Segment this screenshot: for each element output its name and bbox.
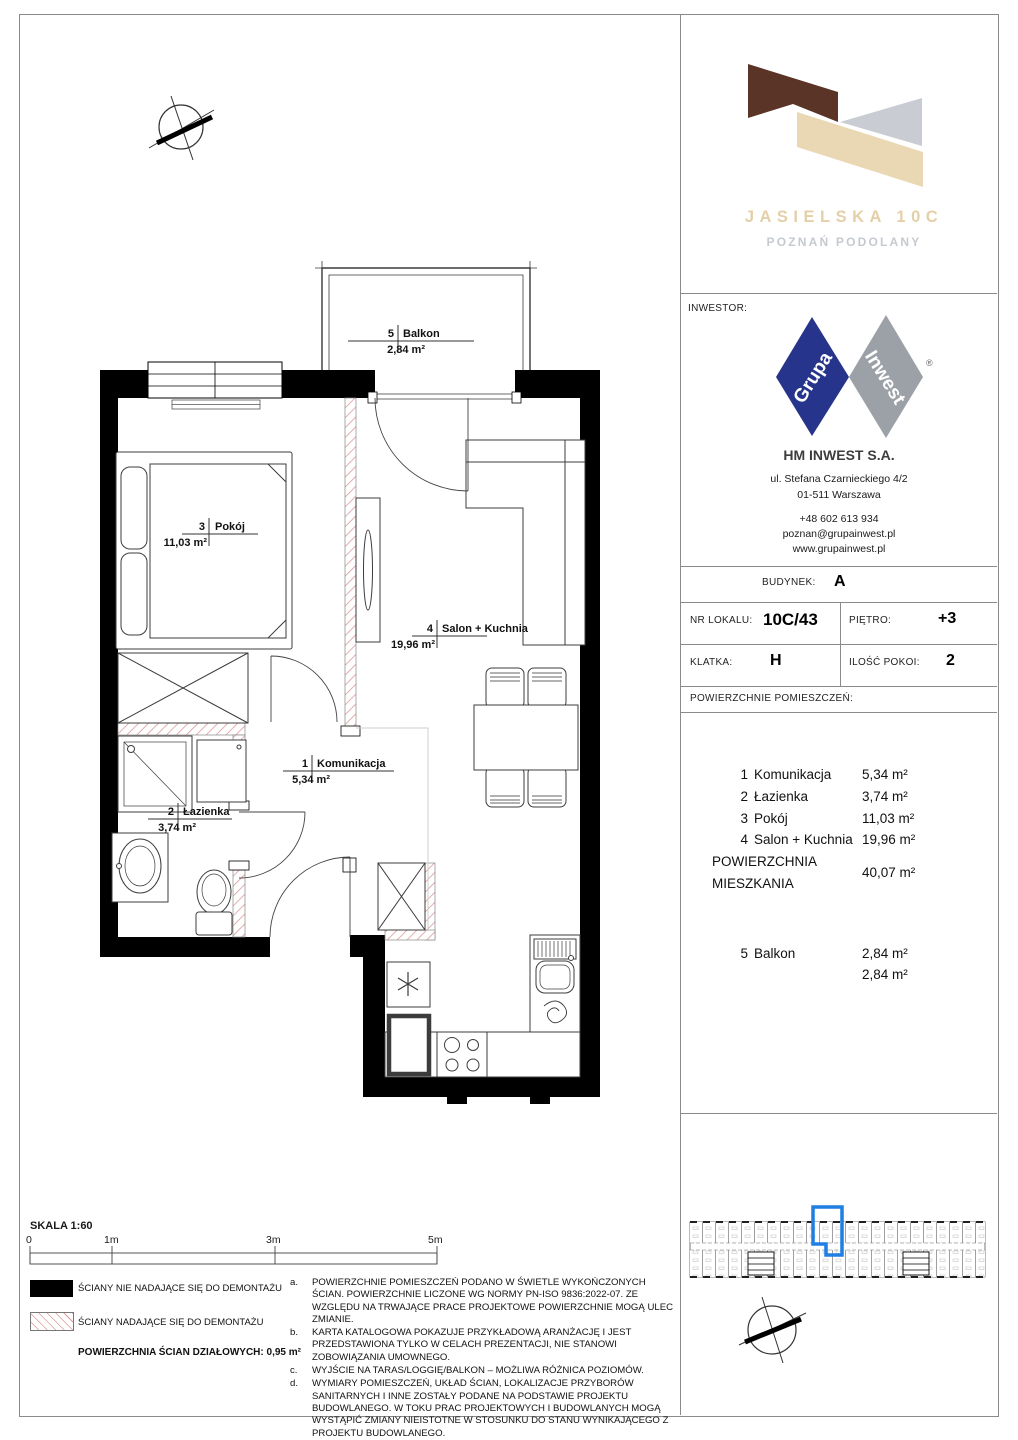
svg-text:19,96 m²: 19,96 m² xyxy=(391,639,435,651)
stove xyxy=(437,1032,487,1077)
svg-text:1: 1 xyxy=(302,758,308,770)
total-area-label: POWIERZCHNIA xyxy=(712,854,817,869)
footnotes: a. POWIERZCHNIE POMIESZCZEŃ PODANO W ŚWI… xyxy=(290,1277,674,1440)
balcony-row-no: 5 xyxy=(730,946,748,961)
footnote: c. WYJŚCIE NA TARAS/LOGGIĘ/BALKON – MOŻL… xyxy=(290,1365,674,1377)
footnote-text: WYJŚCIE NA TARAS/LOGGIĘ/BALKON – MOŻLIWA… xyxy=(312,1365,674,1377)
scale-bar xyxy=(25,1240,450,1270)
separator-bottom xyxy=(681,1113,997,1114)
room-row-no: 4 xyxy=(730,832,748,847)
window xyxy=(148,362,282,398)
scale-tick-label: 1m xyxy=(104,1234,119,1246)
floor-label: PIĘTRO: xyxy=(849,615,891,626)
areas-header: POWIERZCHNIE POMIESZCZEŃ: xyxy=(690,693,853,704)
building-value: A xyxy=(834,573,846,591)
room-row-no: 1 xyxy=(730,767,748,782)
separator-logo xyxy=(681,293,997,294)
dining-table xyxy=(474,705,578,770)
logo-shape-brown xyxy=(748,64,838,122)
staircase-value: H xyxy=(770,652,782,670)
north-arrow-icon xyxy=(140,85,230,175)
investor-address1: ul. Stefana Czarnieckiego 4/2 xyxy=(681,473,997,485)
svg-text:Balkon: Balkon xyxy=(403,328,440,340)
investor-company: HM INWEST S.A. xyxy=(681,447,997,463)
entrance-door xyxy=(270,857,350,937)
investor-website: www.grupainwest.pl xyxy=(681,543,997,555)
svg-text:5,34 m²: 5,34 m² xyxy=(292,774,330,786)
scale-title: SKALA 1:60 xyxy=(30,1220,93,1232)
footnote-id: a. xyxy=(290,1277,312,1326)
svg-text:Łazienka: Łazienka xyxy=(183,806,230,818)
scale-tick-label: 0 xyxy=(26,1234,32,1246)
footnote-text: KARTA KATALOGOWA POKAZUJE PRZYKŁADOWĄ AR… xyxy=(312,1327,674,1364)
legend-hatched-wall-label: ŚCIANY NADAJĄCE SIĘ DO DEMONTAŻU xyxy=(78,1317,263,1328)
table-cell-divider xyxy=(840,602,841,686)
table-border xyxy=(681,644,997,645)
footnote-text: WYMIARY POMIESZCZEŃ, UKŁAD ŚCIAN, LOKALI… xyxy=(312,1378,674,1439)
kitchen-cabinet xyxy=(389,1016,429,1074)
investor-phone: +48 602 613 934 xyxy=(681,513,997,525)
unit-number-label: NR LOKALU: xyxy=(690,615,752,626)
legend-solid-wall-swatch xyxy=(30,1280,73,1297)
corner-sofa xyxy=(466,440,585,645)
trademark-symbol: ® xyxy=(926,358,933,368)
project-logo: JASIELSKA 10C POZNAŃ PODOLANY xyxy=(680,40,998,260)
svg-text:5: 5 xyxy=(388,328,394,340)
svg-text:2,84 m²: 2,84 m² xyxy=(387,344,425,356)
scale-tick-label: 3m xyxy=(266,1234,281,1246)
unit-number-value: 10C/43 xyxy=(763,610,818,630)
balcony-total-area: 2,84 m² xyxy=(862,967,908,982)
room-row-no: 2 xyxy=(730,789,748,804)
scale-tick-label: 5m xyxy=(428,1234,443,1246)
catalog-page: 5 Balkon 2,84 m² 3 Pokój 11,03 m² 4 Salo… xyxy=(0,0,1018,1440)
total-area-label: MIESZKANIA xyxy=(712,876,794,891)
bathroom-fixtures xyxy=(112,736,246,935)
footnote-id: b. xyxy=(290,1327,312,1364)
svg-text:Komunikacja: Komunikacja xyxy=(317,758,386,770)
svg-text:Salon + Kuchnia: Salon + Kuchnia xyxy=(442,623,529,635)
north-arrow-icon xyxy=(735,1290,815,1370)
svg-text:Pokój: Pokój xyxy=(215,521,245,533)
room-row-name: Komunikacja xyxy=(754,767,831,782)
balcony-row-name: Balkon xyxy=(754,946,795,961)
footnote: d. WYMIARY POMIESZCZEŃ, UKŁAD ŚCIAN, LOK… xyxy=(290,1378,674,1439)
footnote-text: POWIERZCHNIE POMIESZCZEŃ PODANO W ŚWIETL… xyxy=(312,1277,674,1326)
building-label: BUDYNEK: xyxy=(762,577,816,588)
svg-text:3,74 m²: 3,74 m² xyxy=(158,822,196,834)
kitchen xyxy=(385,935,580,1077)
floor-plan: 5 Balkon 2,84 m² 3 Pokój 11,03 m² 4 Salo… xyxy=(80,250,620,1120)
room-row-area: 19,96 m² xyxy=(862,832,915,847)
partition-area-note: POWIERZCHNIA ŚCIAN DZIAŁOWYCH: 0,95 m² xyxy=(78,1347,301,1358)
entry-closet xyxy=(378,863,425,930)
room-row-area: 11,03 m² xyxy=(862,811,914,826)
plan-label-balkon: 5 Balkon 2,84 m² xyxy=(348,325,474,356)
rooms-count-value: 2 xyxy=(946,652,955,670)
table-border xyxy=(681,712,997,713)
footnote-id: c. xyxy=(290,1365,312,1377)
svg-text:11,03 m²: 11,03 m² xyxy=(164,537,208,549)
room-row-name: Pokój xyxy=(754,811,788,826)
investor-logo: Grupa Inwest ® xyxy=(680,300,998,445)
plan-label-salon: 4 Salon + Kuchnia 19,96 m² xyxy=(391,620,529,651)
room-row-no: 3 xyxy=(730,811,748,826)
room-row-name: Salon + Kuchnia xyxy=(754,832,853,847)
table-border xyxy=(681,686,997,687)
staircase-label: KLATKA: xyxy=(690,657,733,668)
legend-hatched-wall-swatch xyxy=(30,1312,74,1331)
svg-text:4: 4 xyxy=(427,623,434,635)
legend-solid-wall-label: ŚCIANY NIE NADAJĄCE SIĘ DO DEMONTAŻU xyxy=(78,1283,282,1294)
svg-text:3: 3 xyxy=(199,521,205,533)
dining-set xyxy=(474,668,578,807)
investor-email: poznan@grupainwest.pl xyxy=(681,528,997,540)
footnote-id: d. xyxy=(290,1378,312,1439)
room-row-area: 5,34 m² xyxy=(862,767,908,782)
svg-text:2: 2 xyxy=(168,806,174,818)
footnote: b. KARTA KATALOGOWA POKAZUJE PRZYKŁADOWĄ… xyxy=(290,1327,674,1364)
footnote: a. POWIERZCHNIE POMIESZCZEŃ PODANO W ŚWI… xyxy=(290,1277,674,1326)
project-title: JASIELSKA 10C xyxy=(745,208,943,226)
investor-address2: 01-511 Warszawa xyxy=(681,489,997,501)
rooms-count-label: ILOŚĆ POKOI: xyxy=(849,657,920,668)
balcony-row-area: 2,84 m² xyxy=(862,946,908,961)
room-row-name: Łazienka xyxy=(754,789,808,804)
floor-value: +3 xyxy=(938,610,956,628)
total-area-value: 40,07 m² xyxy=(862,865,915,880)
radiator xyxy=(172,400,260,409)
project-subtitle: POZNAŃ PODOLANY xyxy=(766,234,921,249)
room-row-area: 3,74 m² xyxy=(862,789,908,804)
plan-label-komunikacja: 1 Komunikacja 5,34 m² xyxy=(283,755,394,786)
bed xyxy=(116,452,292,649)
wardrobe xyxy=(118,653,248,723)
table-border xyxy=(681,602,997,603)
balcony-door xyxy=(375,398,468,491)
table-border xyxy=(681,566,997,567)
tv-cabinet xyxy=(356,498,380,642)
bedroom-door xyxy=(271,656,337,722)
building-overview xyxy=(680,1190,998,1290)
